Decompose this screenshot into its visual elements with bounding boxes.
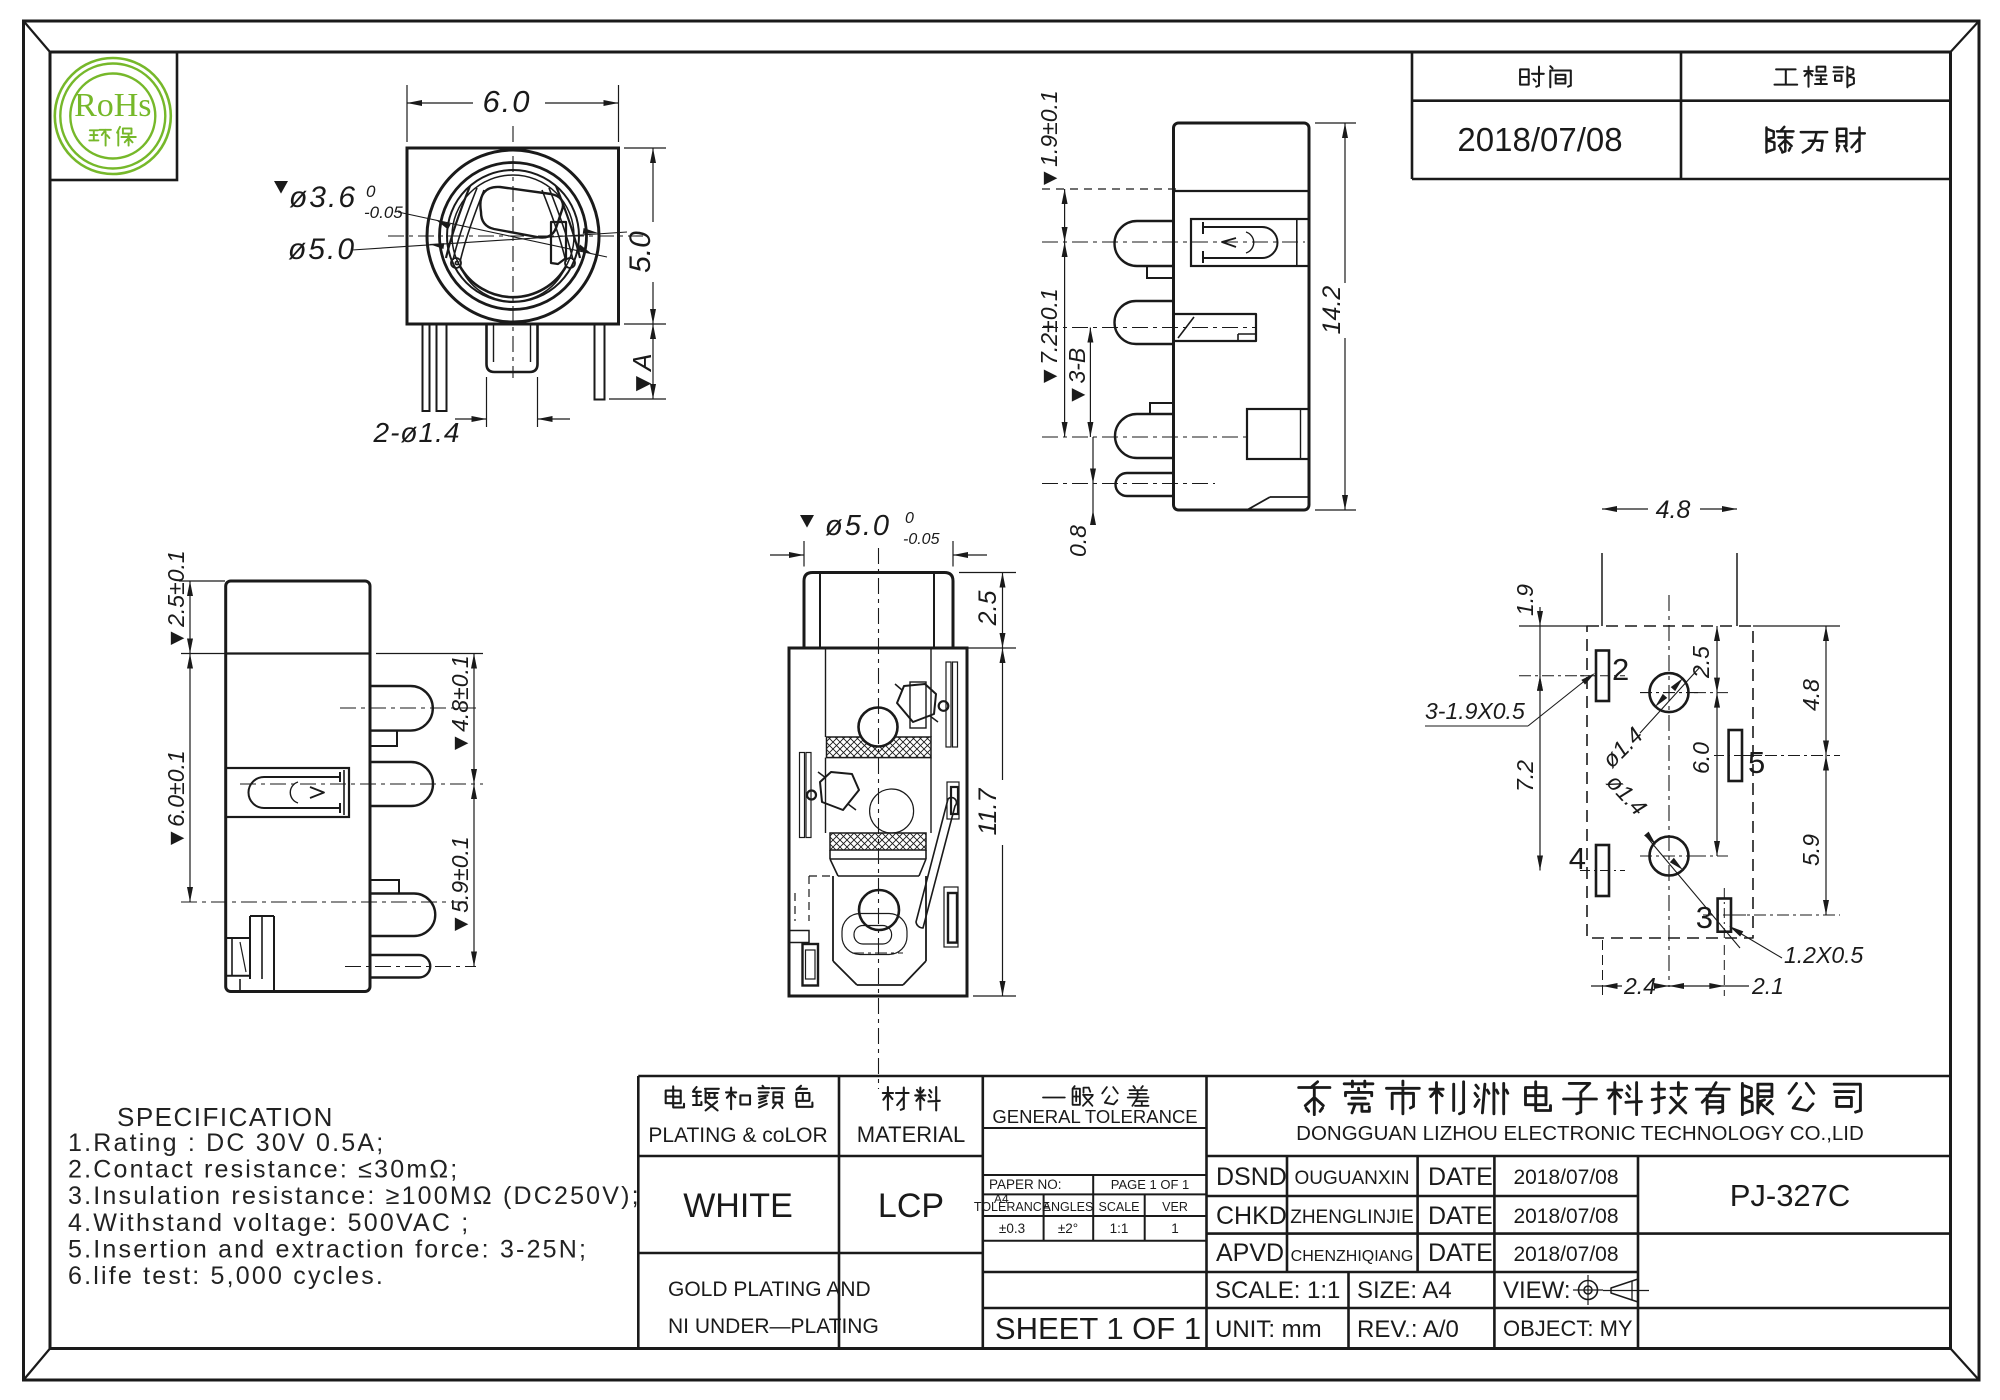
svg-text:-0.05: -0.05 (903, 531, 940, 548)
svg-text:7.2: 7.2 (1512, 760, 1538, 792)
svg-text:SPECIFICATION: SPECIFICATION (117, 1102, 334, 1132)
svg-text:2018/07/08: 2018/07/08 (1513, 1205, 1618, 1228)
svg-text:4.Withstand voltage: 500VAC ;: 4.Withstand voltage: 500VAC ; (68, 1209, 470, 1237)
svg-text:ANGLES: ANGLES (1043, 1200, 1094, 1214)
svg-text:2.4: 2.4 (1623, 973, 1656, 999)
svg-text:2018/07/08: 2018/07/08 (1513, 1243, 1618, 1266)
svg-text:SCALE: 1:1: SCALE: 1:1 (1215, 1277, 1340, 1304)
svg-text:ø3.6: ø3.6 (289, 181, 357, 214)
svg-text:4.8: 4.8 (1656, 496, 1691, 524)
svg-text:DATE: DATE (1428, 1239, 1493, 1267)
svg-text:2.5: 2.5 (974, 591, 1002, 627)
svg-text:5: 5 (1748, 745, 1765, 780)
svg-text:6.life test: 5,000 cycles.: 6.life test: 5,000 cycles. (68, 1262, 385, 1290)
svg-text:▼5.9±0.1: ▼5.9±0.1 (447, 836, 473, 935)
svg-text:APVD: APVD (1216, 1239, 1284, 1267)
svg-text:▼1.9±0.1: ▼1.9±0.1 (1036, 90, 1062, 189)
svg-text:0: 0 (366, 182, 376, 201)
svg-text:1:1: 1:1 (1110, 1221, 1129, 1236)
svg-text:MATERIAL: MATERIAL (857, 1122, 965, 1147)
svg-text:REV.: A/0: REV.: A/0 (1357, 1316, 1459, 1343)
svg-text:UNIT: mm: UNIT: mm (1215, 1316, 1322, 1343)
svg-text:14.2: 14.2 (1318, 286, 1346, 335)
svg-text:▼3-B: ▼3-B (1064, 348, 1090, 407)
svg-text:GOLD PLATING AND: GOLD PLATING AND (668, 1278, 871, 1301)
svg-text:▼4.8±0.1: ▼4.8±0.1 (447, 655, 473, 754)
svg-text:SIZE: A4: SIZE: A4 (1357, 1277, 1452, 1304)
svg-text:VIEW:: VIEW: (1503, 1277, 1571, 1304)
svg-text:2018/07/08: 2018/07/08 (1457, 121, 1622, 158)
svg-text:LCP: LCP (878, 1187, 944, 1225)
svg-text:±2°: ±2° (1058, 1221, 1078, 1236)
svg-text:DATE: DATE (1428, 1202, 1493, 1230)
svg-text:TOLERANCE: TOLERANCE (974, 1200, 1050, 1214)
svg-text:ZHENGLINJIE: ZHENGLINJIE (1290, 1207, 1414, 1228)
svg-text:ø5.0: ø5.0 (825, 510, 891, 542)
svg-text:VER: VER (1162, 1200, 1188, 1214)
svg-text:DATE: DATE (1428, 1163, 1493, 1191)
svg-text:1.9: 1.9 (1512, 584, 1538, 616)
svg-text:OUGUANXIN: OUGUANXIN (1294, 1168, 1409, 1189)
svg-text:RoHs: RoHs (74, 87, 151, 124)
svg-text:6.0: 6.0 (482, 84, 531, 119)
svg-text:GENERAL TOLERANCE: GENERAL TOLERANCE (992, 1106, 1197, 1127)
svg-text:▼A: ▼A (627, 353, 657, 396)
svg-text:1: 1 (1171, 1221, 1179, 1236)
svg-text:PJ-327C: PJ-327C (1730, 1178, 1851, 1213)
svg-text:11.7: 11.7 (974, 788, 1002, 836)
svg-text:5.0: 5.0 (624, 231, 657, 273)
svg-text:CHENZHIQIANG: CHENZHIQIANG (1291, 1248, 1414, 1265)
svg-text:0.8: 0.8 (1065, 525, 1091, 557)
svg-text:6.0: 6.0 (1688, 742, 1714, 774)
svg-text:NI UNDER—PLATING: NI UNDER—PLATING (668, 1315, 879, 1338)
svg-text:2.1: 2.1 (1751, 973, 1784, 999)
svg-text:▼6.0±0.1: ▼6.0±0.1 (163, 750, 189, 849)
svg-text:2-ø1.4: 2-ø1.4 (373, 417, 461, 448)
svg-text:4.8: 4.8 (1798, 679, 1824, 711)
svg-text:OBJECT: MY: OBJECT: MY (1503, 1316, 1633, 1341)
svg-text:WHITE: WHITE (683, 1187, 793, 1225)
svg-text:2.5: 2.5 (1688, 646, 1714, 679)
svg-text:CHKD: CHKD (1216, 1202, 1287, 1230)
svg-text:1.Rating : DC 30V 0.5A;: 1.Rating : DC 30V 0.5A; (68, 1129, 385, 1157)
svg-text:±0.3: ±0.3 (999, 1221, 1025, 1236)
svg-text:2018/07/08: 2018/07/08 (1513, 1166, 1618, 1189)
svg-text:-0.05: -0.05 (364, 203, 403, 222)
svg-text:▼7.2±0.1: ▼7.2±0.1 (1036, 288, 1062, 387)
svg-text:2.Contact resistance: ≤30mΩ;: 2.Contact resistance: ≤30mΩ; (68, 1156, 459, 1184)
svg-text:2: 2 (1612, 652, 1629, 687)
svg-text:5.9: 5.9 (1798, 834, 1824, 866)
svg-text:DONGGUAN LIZHOU ELECTRONIC TEC: DONGGUAN LIZHOU ELECTRONIC TECHNOLOGY CO… (1296, 1122, 1864, 1145)
svg-text:PAGE 1 OF 1: PAGE 1 OF 1 (1111, 1177, 1190, 1192)
svg-text:3-1.9X0.5: 3-1.9X0.5 (1425, 698, 1525, 724)
svg-text:▼2.5±0.1: ▼2.5±0.1 (163, 550, 189, 649)
svg-text:SHEET 1 OF 1: SHEET 1 OF 1 (995, 1311, 1201, 1346)
svg-text:3.Insulation resistance: ≥100M: 3.Insulation resistance: ≥100MΩ (DC250V)… (68, 1182, 641, 1210)
svg-text:1.2X0.5: 1.2X0.5 (1784, 942, 1863, 968)
svg-text:0: 0 (905, 510, 914, 527)
svg-text:PAPER NO:: PAPER NO: (989, 1177, 1062, 1192)
svg-text:SCALE: SCALE (1099, 1200, 1140, 1214)
svg-text:5.Insertion and extraction for: 5.Insertion and extraction force: 3-25N; (68, 1235, 588, 1263)
svg-text:DSND: DSND (1216, 1163, 1287, 1191)
svg-text:ø5.0: ø5.0 (288, 233, 356, 266)
svg-text:PLATING & coLOR: PLATING & coLOR (648, 1124, 827, 1147)
